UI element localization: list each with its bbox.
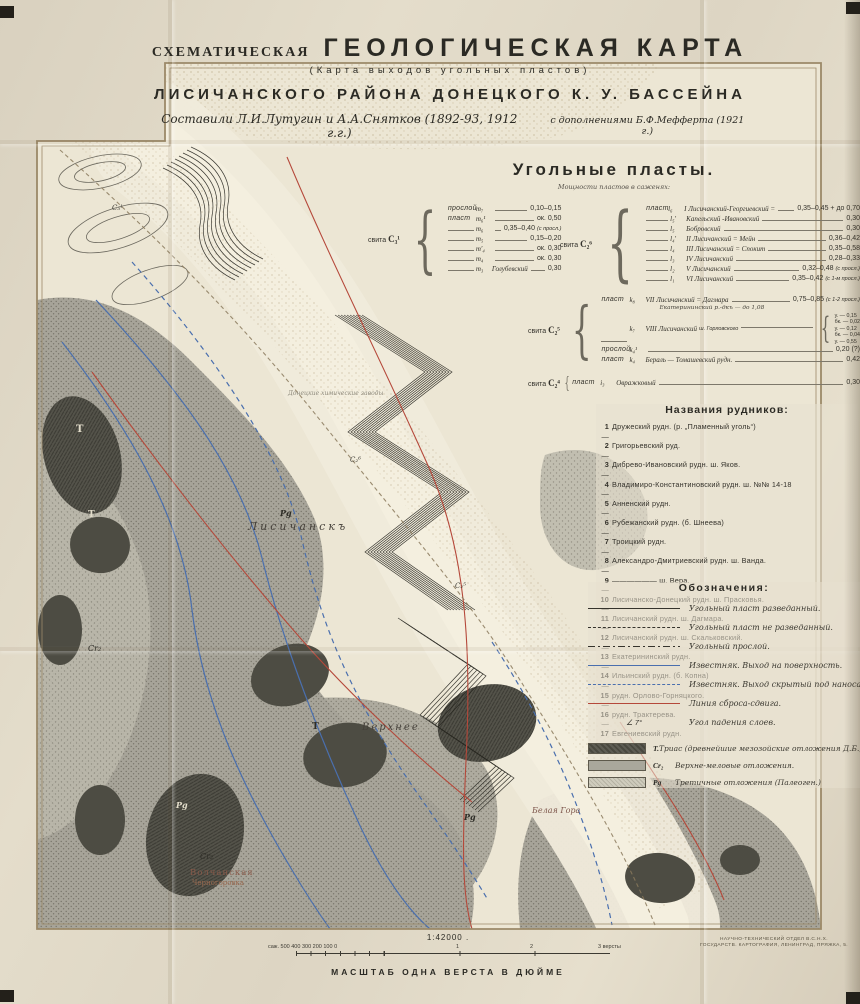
mine-item: 8Александро-Дмитриевский рудн. ш. Ванда. — [596, 556, 858, 575]
seam-group-i: свита C₂⁴ { пластi₃Овражковый0,30 — [518, 375, 860, 391]
seam-explored-line — [588, 608, 680, 609]
seam-row: l₂V Лисичанский0,32–0,48(с просл.) — [646, 264, 860, 274]
seam-row: m₅0,15–0,20 — [448, 234, 562, 244]
scale-bar: саж. 500 400 300 200 100 0 1 2 3 версты — [268, 944, 628, 960]
seam-group-k: свита C₂⁵ { пластk₈VII Лисичанский = Даг… — [518, 295, 860, 365]
seams-subheading: Мощности пластов в саженях: — [368, 183, 860, 191]
photo-corner — [846, 992, 860, 1004]
mine-item: 1Дружеский рудн. (р. „Пламенный уголь“) — [596, 422, 858, 441]
unit-label-T: Т — [76, 424, 83, 435]
strata-row: Т.Триас (древнейшие мезозойские отложени… — [588, 743, 860, 754]
suite-code: C₃¹ — [388, 234, 400, 244]
seam-row: m₃Голубевский0,30 — [448, 264, 562, 274]
seam-row: l₁VI Лисичанский0,35–0,42(с 1-м просл.) — [646, 274, 860, 284]
seam-unexplored-line — [588, 627, 680, 628]
suite-label: свита — [368, 237, 386, 244]
photo-corner — [0, 6, 14, 18]
unit-label-T: Т — [88, 510, 95, 520]
seam-row: пластk₄Бераль — Томашевский рудн.0,42 — [601, 355, 860, 365]
town-label-lisichansk: Лисичанскъ — [248, 520, 348, 533]
place-label-belaya-gora: Белая Гора — [532, 806, 580, 815]
seam-row: прослойm₇0,10–0,15 — [448, 204, 562, 214]
seam-row: m₆0,35–0,40(с просл.) — [448, 224, 562, 234]
unit-label-C26: C₂⁶ — [350, 456, 361, 464]
title-prefix: СХЕМАТИЧЕСКАЯ — [152, 45, 310, 61]
page-edge-shadow — [844, 0, 860, 1004]
unit-label-C25: C₂⁵ — [455, 582, 466, 590]
map-sheet: СХЕМАТИЧЕСКАЯ ГЕОЛОГИЧЕСКАЯ КАРТА (Карта… — [0, 0, 860, 1004]
unit-label-Pg: Pg — [176, 800, 188, 810]
seam-row: l₅′Капельский -Ивановский0,30 — [646, 214, 860, 224]
title-subtitle: (Карта выходов угольных пластов) — [150, 65, 750, 76]
legend-row: Угольный прослой. — [588, 642, 860, 651]
brace: { — [607, 203, 633, 285]
mine-item: 6Рубежанский рудн. (б. Шнеева) — [596, 518, 858, 537]
scale-tick-1: 1 — [456, 944, 459, 950]
seams-heading: Угольные пласты. — [368, 160, 860, 180]
legend-row: ∠ 7°Угол падения слоев. — [588, 718, 860, 727]
seam-row: пластk₈VII Лисичанский = Дагмара0,75–0,8… — [601, 295, 860, 305]
fold-crease — [0, 140, 860, 144]
place-label-chemical-works: Донецкие химические заводы — [288, 390, 383, 397]
suite-code: C₂⁵ — [548, 325, 560, 335]
seam-row: k₇VIII Лисичанскийш. Горловского { у. — … — [601, 313, 860, 345]
imprint-line2: ГОСУДАРСТВ. КАРТОГРАФИЯ, ЛЕНИНГРАД, ПРЯЖ… — [690, 943, 858, 949]
legend-row: Угольный пласт разведанный. — [588, 604, 860, 613]
seam-row: пластi₃Овражковый0,30 — [572, 378, 860, 388]
mine-item: 7Троицкий рудн. — [596, 537, 858, 556]
interlayer-line — [588, 646, 680, 647]
triassic-swatch — [588, 743, 646, 754]
scale-tick-2: 2 — [530, 944, 533, 950]
seam-row: пластm₆¹ок. 0,50 — [448, 214, 562, 224]
unit-label-Cr2: Cr₂ — [200, 852, 213, 861]
seam-row: l₃IV Лисичанский0,28–0,33 — [646, 254, 860, 264]
legend-row: Известняк. Выход скрытый под наносами. — [588, 680, 860, 689]
suite-label: свита — [528, 381, 546, 388]
scale-tick-3: 3 версты — [598, 944, 621, 950]
brace: { — [572, 299, 592, 361]
legend-row: Угольный пласт не разведанный. — [588, 623, 860, 632]
legend-row: Известняк. Выход на поверхность. — [588, 661, 860, 670]
seam-row: пластl₆I Лисичанский-Георгиевский =0,35–… — [646, 204, 860, 214]
scale-block: 1:42000 . саж. 500 400 300 200 100 0 1 2… — [268, 933, 628, 977]
seam-row: l₄′II Лисичанский = Мейн0,36–0,42 — [646, 234, 860, 244]
paleogene-swatch — [588, 777, 646, 788]
town-label-verkhneye: Верхнее — [362, 722, 420, 733]
fault-line — [588, 703, 680, 704]
mine-item: 3Дибрево-Ивановский рудн. ш. Яков. — [596, 460, 858, 479]
symbols-heading: Обозначения: — [588, 582, 860, 594]
seam-group-l: свита C₂⁶ { пластl₆I Лисичанский-Георгие… — [554, 203, 860, 285]
unit-label-T: Т — [312, 722, 319, 732]
strata-row: PgТретичные отложения (Палеоген.) — [588, 777, 860, 788]
seam-group-m: свита C₃¹ { прослойm₇0,10–0,15 пластm₆¹о… — [368, 203, 554, 275]
unit-label-Pg: Pg — [464, 812, 476, 822]
page-title: ГЕОЛОГИЧЕСКАЯ КАРТА — [323, 34, 748, 63]
seam-row: m′₄ок. 0,30 — [448, 244, 562, 254]
scale-ratio: 1:42000 . — [268, 933, 628, 942]
fold-crease — [168, 0, 172, 1004]
symbols-panel: Обозначения: Угольный пласт разведанный.… — [588, 582, 860, 788]
coal-seams-panel: Угольные пласты. Мощности пластов в саже… — [368, 160, 860, 391]
title-addition: с дополнениями Б.Ф.Мефферта (1921 г.) — [545, 115, 750, 137]
scale-left-label: саж. 500 400 300 200 100 0 — [268, 944, 337, 950]
limestone-hidden-line — [588, 684, 680, 685]
photo-corner — [0, 990, 14, 1002]
unit-label-C31: C₃¹ — [112, 204, 123, 212]
limestone-surface-line — [588, 665, 680, 666]
photo-corner — [846, 2, 860, 14]
seam-row: m₄ок. 0,30 — [448, 254, 562, 264]
cretaceous-swatch — [588, 760, 646, 771]
brace: { — [820, 324, 830, 334]
brace: { — [565, 375, 570, 391]
strata-row: Cr₂Верхне-меловые отложения. — [588, 760, 860, 771]
unit-label-Pg: Pg — [280, 508, 292, 518]
title-region: ЛИСИЧАНСКОГО РАЙОНА ДОНЕЦКОГО К. У. БАСС… — [150, 86, 750, 103]
legend-row: Линия сброса-сдвига. — [588, 699, 860, 708]
mine-item: 4Владимиро-Константиновский рудн. ш. №№ … — [596, 480, 858, 499]
imprint: НАУЧНО-ТЕХНИЧЕСКИЙ ОТДЕЛ В.С.Н.Х. ГОСУДА… — [690, 937, 858, 949]
town-label-chernogorovka: Черногоровка — [192, 879, 244, 887]
brace: { — [413, 203, 436, 275]
mine-item: 2Григорьевский руд. — [596, 441, 858, 460]
scale-caption: МАСШТАБ ОДНА ВЕРСТА В ДЮЙМЕ — [268, 967, 628, 977]
dip-angle-icon: ∠ 7° — [588, 718, 680, 727]
mines-heading: Названия рудников: — [596, 404, 858, 416]
title-authors: Составили Л.И.Лутугин и А.А.Снятков (189… — [150, 112, 529, 140]
suite-code: C₂⁶ — [580, 239, 592, 249]
seam-row: прослойk₄¹0,20 (?) — [601, 345, 860, 355]
unit-label-Cr2: Cr₂ — [88, 644, 101, 653]
seam-row: l₅Бобровский0,30 — [646, 224, 860, 234]
mine-item: 5Анненский рудн. — [596, 499, 858, 518]
suite-label: свита — [528, 328, 546, 335]
suite-label: свита — [560, 242, 578, 249]
seam-row: l₄III Лисичанский = Спокит0,35–0,58 — [646, 244, 860, 254]
suite-code: C₂⁴ — [548, 378, 560, 388]
town-label-volchanskaya: Волчанская — [190, 868, 254, 878]
title-block: СХЕМАТИЧЕСКАЯ ГЕОЛОГИЧЕСКАЯ КАРТА (Карта… — [150, 34, 750, 140]
